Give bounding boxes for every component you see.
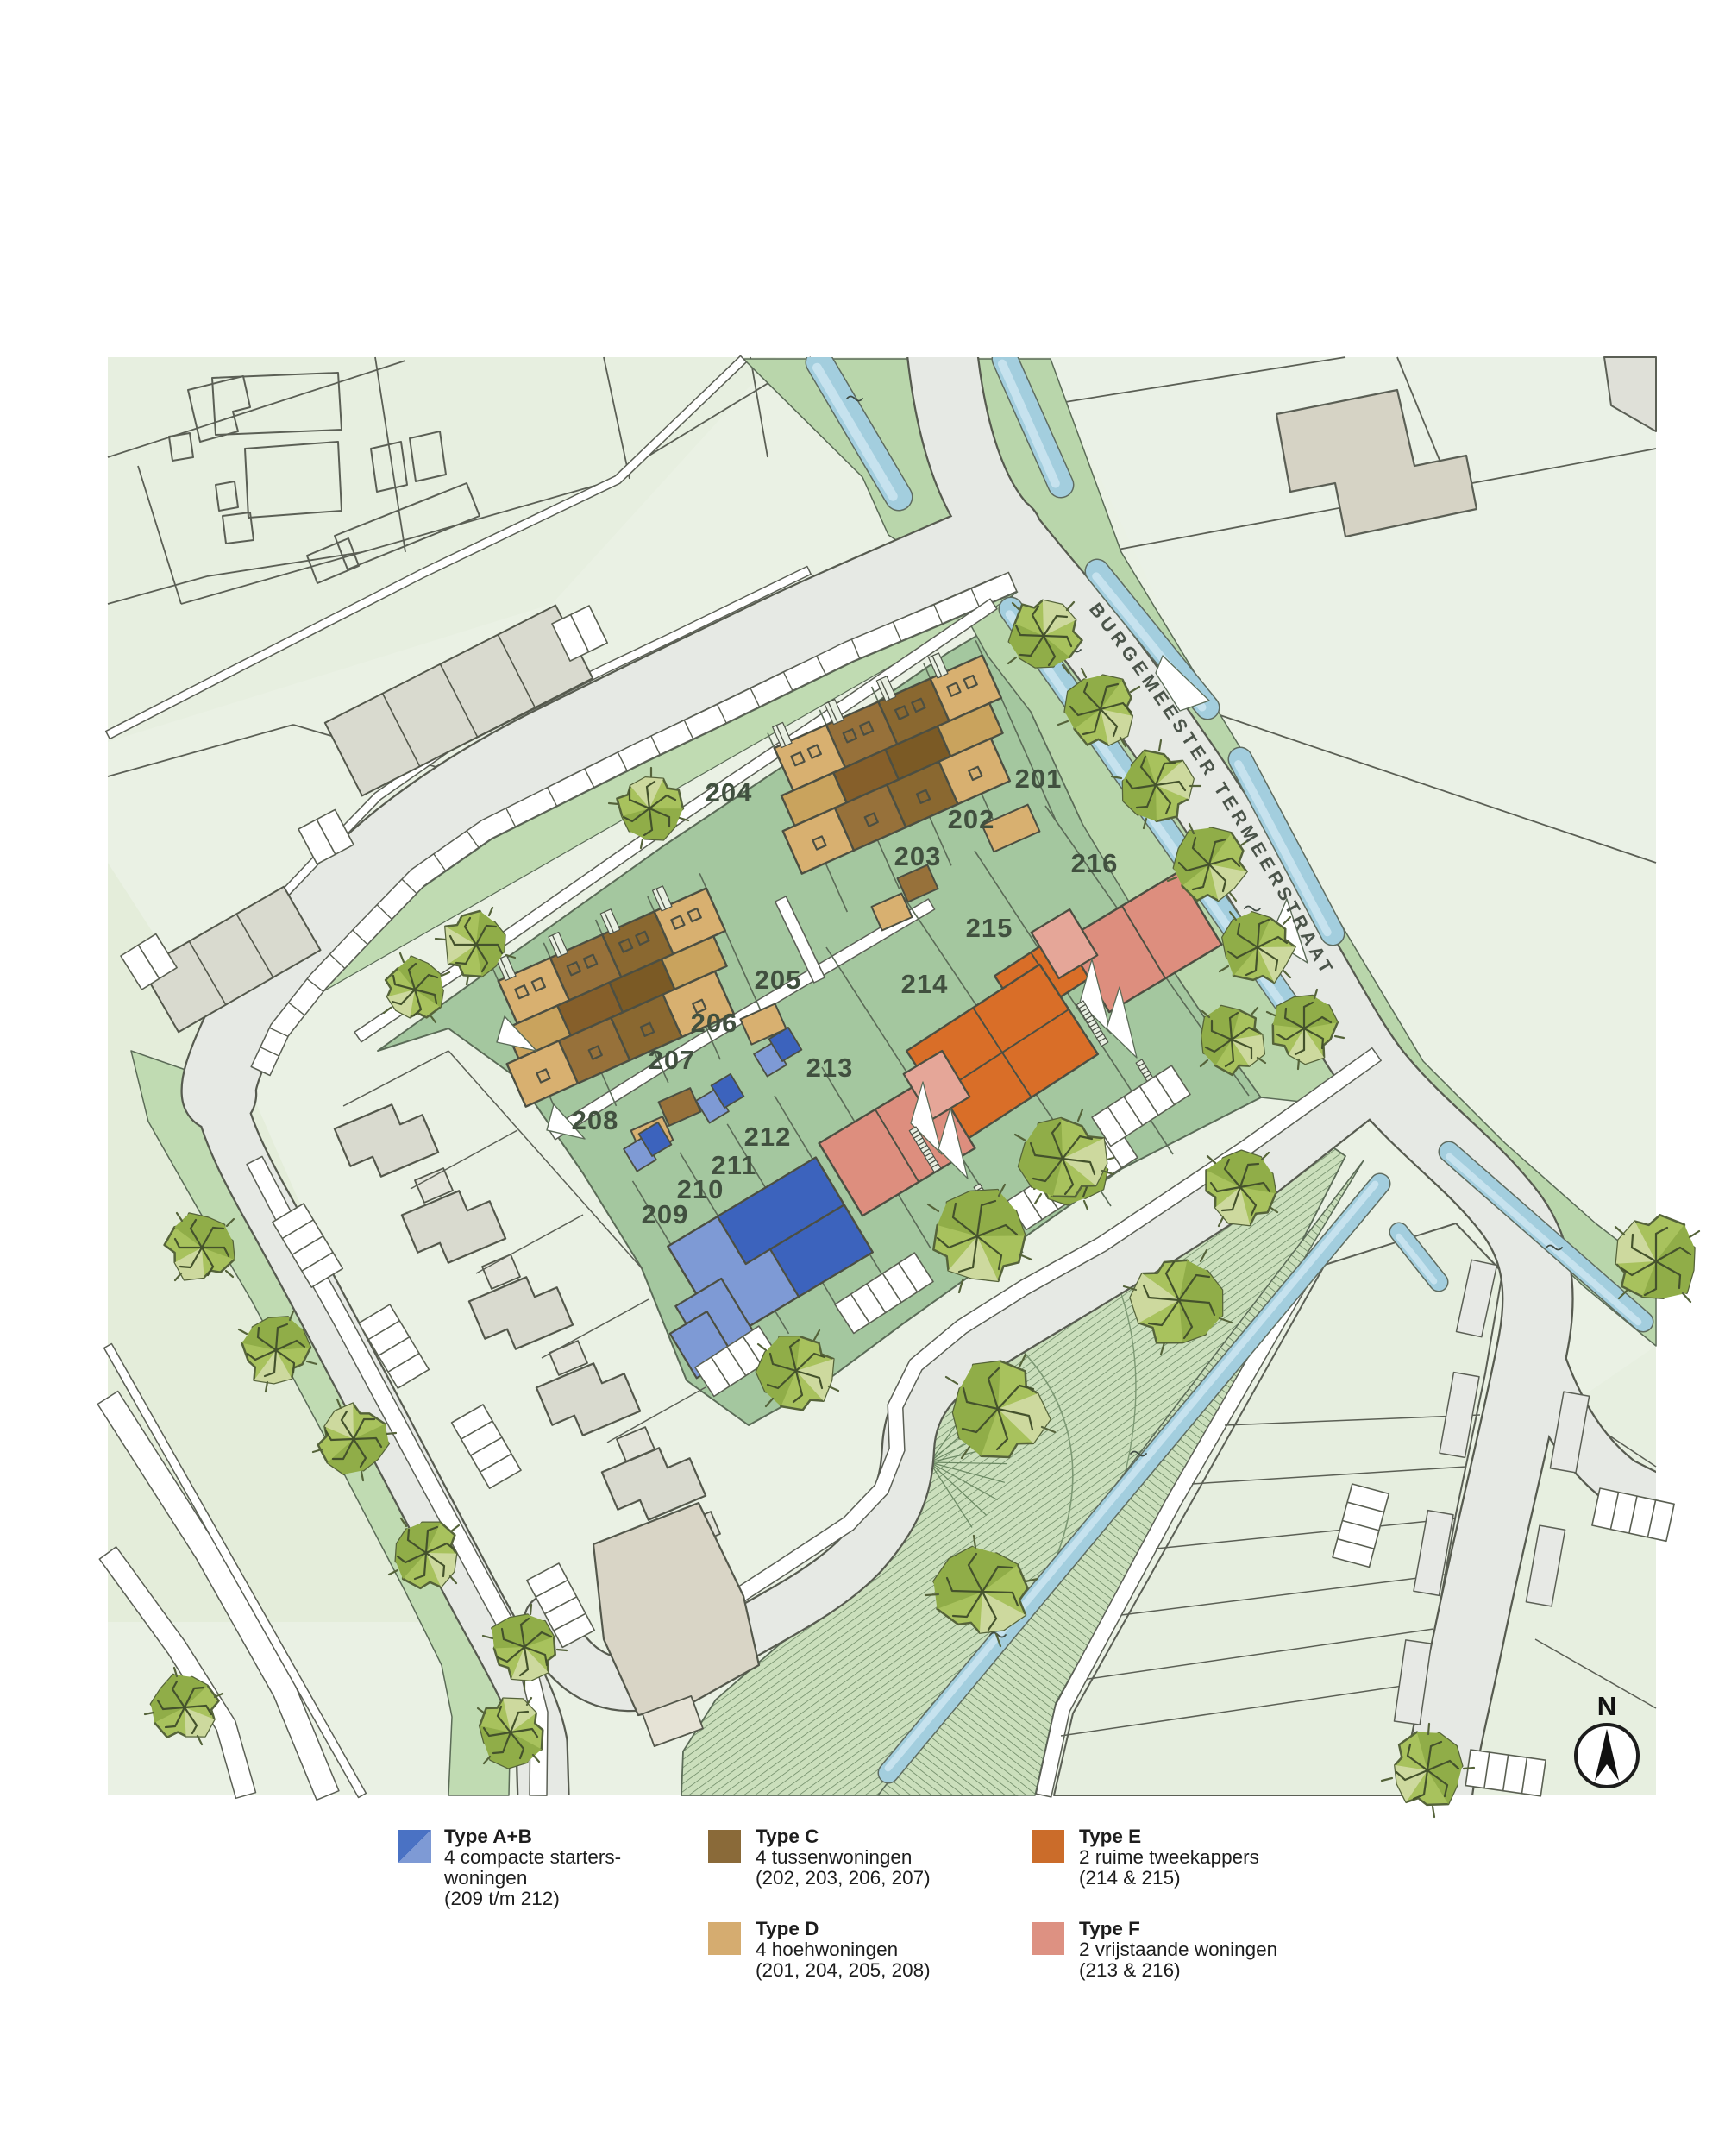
svg-text:2 vrijstaande woningen: 2 vrijstaande woningen	[1079, 1939, 1277, 1960]
svg-text:N: N	[1597, 1691, 1616, 1721]
svg-text:208: 208	[572, 1105, 619, 1135]
svg-text:202: 202	[948, 804, 995, 834]
svg-text:203: 203	[894, 841, 942, 871]
svg-text:Type C: Type C	[756, 1826, 819, 1847]
svg-text:205: 205	[755, 965, 802, 995]
svg-text:204: 204	[706, 777, 753, 808]
svg-text:206: 206	[691, 1008, 738, 1038]
svg-text:4 hoehwoningen: 4 hoehwoningen	[756, 1939, 898, 1960]
svg-text:(202, 203, 206, 207): (202, 203, 206, 207)	[756, 1867, 931, 1889]
svg-text:(213 & 216): (213 & 216)	[1079, 1959, 1181, 1981]
svg-text:212: 212	[744, 1122, 792, 1152]
svg-text:(209 t/m 212): (209 t/m 212)	[444, 1888, 560, 1909]
svg-text:211: 211	[711, 1150, 756, 1180]
svg-text:Type D: Type D	[756, 1918, 819, 1939]
svg-text:201: 201	[1015, 764, 1063, 794]
svg-text:4 compacte starters-: 4 compacte starters-	[444, 1846, 621, 1868]
svg-text:214: 214	[901, 969, 949, 999]
svg-text:215: 215	[966, 913, 1013, 943]
svg-text:213: 213	[806, 1053, 854, 1083]
svg-text:(201, 204, 205, 208): (201, 204, 205, 208)	[756, 1959, 931, 1981]
svg-text:Type F: Type F	[1079, 1918, 1140, 1939]
svg-text:4 tussenwoningen: 4 tussenwoningen	[756, 1846, 912, 1868]
svg-text:(214 & 215): (214 & 215)	[1079, 1867, 1181, 1889]
svg-text:woningen: woningen	[443, 1867, 527, 1889]
svg-text:216: 216	[1071, 848, 1119, 878]
svg-text:Type A+B: Type A+B	[444, 1826, 532, 1847]
svg-text:2 ruime tweekappers: 2 ruime tweekappers	[1079, 1846, 1259, 1868]
svg-text:207: 207	[649, 1045, 696, 1075]
svg-text:Type E: Type E	[1079, 1826, 1141, 1847]
